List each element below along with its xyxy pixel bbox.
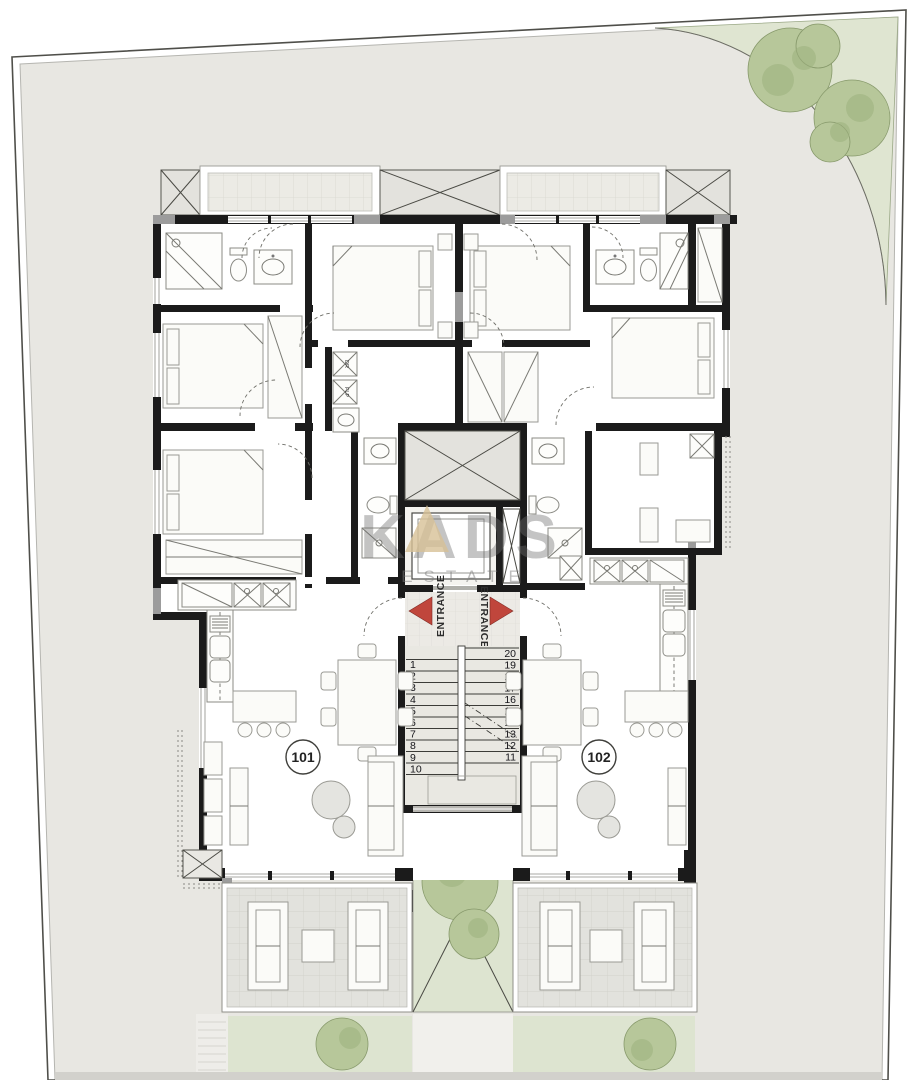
chair-icon — [506, 672, 521, 690]
sink-icon — [596, 250, 634, 284]
stair-window — [413, 806, 512, 812]
bench-planters — [204, 742, 222, 845]
chair-icon — [321, 672, 336, 690]
chair-icon — [583, 672, 598, 690]
balcony-right-tiles — [507, 173, 659, 211]
watermark-subtitle: ESTATE — [401, 567, 531, 586]
cabinet-icon — [650, 560, 684, 582]
laundry-left: DR FLP — [333, 352, 359, 432]
stair-step-number: 12 — [504, 740, 516, 752]
utility-shelf — [640, 443, 658, 475]
top-balconies — [161, 166, 730, 215]
outdoor-sofa-icon — [348, 902, 388, 990]
window — [153, 278, 161, 304]
walkway — [196, 1014, 228, 1076]
core: ENTRANCE ENTRANCE 12345678910 2019181716… — [405, 431, 520, 805]
sink-icon — [364, 438, 396, 464]
stair-step-number: 11 — [505, 752, 516, 764]
wardrobe-icon — [268, 316, 302, 418]
garden-center-path — [413, 1014, 513, 1074]
toilet-icon — [640, 248, 657, 281]
chair-icon — [398, 708, 413, 726]
svg-text:FLP: FLP — [343, 387, 349, 397]
x-box — [690, 434, 714, 458]
stool-icon — [257, 723, 271, 737]
unit-number: 101 — [291, 749, 315, 765]
x-box — [183, 850, 222, 878]
unit-number: 102 — [587, 749, 611, 765]
stove-icon — [210, 616, 230, 632]
utility-shelf — [676, 520, 710, 542]
terrace-right — [513, 883, 697, 1012]
tv-cabinet — [230, 768, 248, 845]
kitchen-island — [625, 691, 688, 722]
stair-step-number: 20 — [504, 648, 516, 660]
stair-step-number: 4 — [410, 694, 416, 706]
window — [722, 330, 730, 388]
outdoor-sofa-icon — [540, 902, 580, 990]
chair-icon — [321, 708, 336, 726]
stair-stringer — [458, 646, 465, 780]
chair-icon — [543, 644, 561, 658]
wardrobe-icon — [166, 540, 302, 574]
chair-icon — [358, 644, 376, 658]
outdoor-sofa-icon — [248, 902, 288, 990]
window — [153, 333, 161, 397]
unit-badge-101: 101 — [286, 740, 320, 774]
chair-icon — [583, 708, 598, 726]
kitchen-sink-icon — [234, 583, 261, 607]
garden-tree-icon-left — [316, 1018, 368, 1070]
stool-icon — [649, 723, 663, 737]
dining-table-icon — [523, 660, 581, 745]
sink-icon — [333, 408, 359, 432]
sofa-icon — [368, 756, 403, 856]
dining-table-icon — [338, 660, 396, 745]
stool-icon — [238, 723, 252, 737]
bed-icon — [464, 234, 570, 338]
balcony-door — [228, 216, 352, 223]
cabinet-icon — [182, 583, 232, 607]
wardrobe-icon — [504, 352, 538, 422]
stair-step-number: 1 — [410, 659, 416, 671]
stool-icon — [630, 723, 644, 737]
kitchen-sink-icon — [622, 560, 648, 582]
stair-step-number: 16 — [504, 694, 516, 706]
shower-icon — [166, 233, 222, 289]
shower-icon — [660, 233, 688, 289]
sofa-icon — [522, 756, 557, 856]
unit-badge-102: 102 — [582, 740, 616, 774]
stair-step-number: 8 — [410, 740, 416, 752]
site-bottom-edge — [55, 1072, 882, 1080]
stool-icon — [668, 723, 682, 737]
garden-tree-icon-right — [624, 1018, 676, 1070]
coffee-table-icon — [590, 930, 622, 962]
stair-step-number: 19 — [504, 660, 516, 672]
stair-step-number: 9 — [410, 752, 416, 764]
bed-icon — [612, 318, 714, 398]
wardrobe-icon — [468, 352, 502, 422]
balcony-door — [515, 216, 640, 223]
stool-icon — [276, 723, 290, 737]
balcony-left-tiles — [208, 173, 372, 211]
stair-step-number: 10 — [410, 763, 422, 775]
outdoor-sofa-icon — [634, 902, 674, 990]
sink-icon — [532, 438, 564, 464]
floor-plan-drawing: ENTRANCE ENTRANCE 12345678910 2019181716… — [0, 0, 914, 1080]
washer-icon: FLP — [333, 380, 357, 404]
terrace-glazing — [530, 871, 678, 880]
utility-shelf — [640, 508, 658, 542]
terrace-glazing — [225, 871, 395, 880]
chair-icon — [398, 672, 413, 690]
svg-text:DR: DR — [343, 360, 349, 368]
kitchen-island — [233, 691, 296, 722]
coffee-table-icon — [302, 930, 334, 962]
tv-cabinet — [668, 768, 686, 845]
sink-icon — [254, 250, 292, 284]
bed-icon — [163, 450, 263, 534]
dryer-icon: DR — [333, 352, 357, 376]
watermark-brand: KADS — [360, 503, 564, 572]
kitchen-sink-icon — [263, 583, 290, 607]
toilet-icon — [230, 248, 247, 281]
entrance-label-right: ENTRANCE — [478, 586, 490, 648]
window — [688, 610, 696, 680]
wardrobe-icon — [698, 228, 722, 302]
window — [153, 470, 161, 534]
stair-step-number: 13 — [504, 729, 516, 741]
kitchen-sink-icon — [594, 560, 620, 582]
stair-step-number: 7 — [410, 729, 416, 741]
stair-numbers-right: 20191817161514131211 — [504, 648, 516, 764]
chair-icon — [506, 708, 521, 726]
bed-icon — [163, 324, 263, 408]
terrace-left — [222, 883, 412, 1012]
floor-plan-page: ENTRANCE ENTRANCE 12345678910 2019181716… — [0, 0, 914, 1080]
staircase: 12345678910 20191817161514131211 — [405, 646, 520, 805]
stove-icon — [663, 590, 685, 606]
